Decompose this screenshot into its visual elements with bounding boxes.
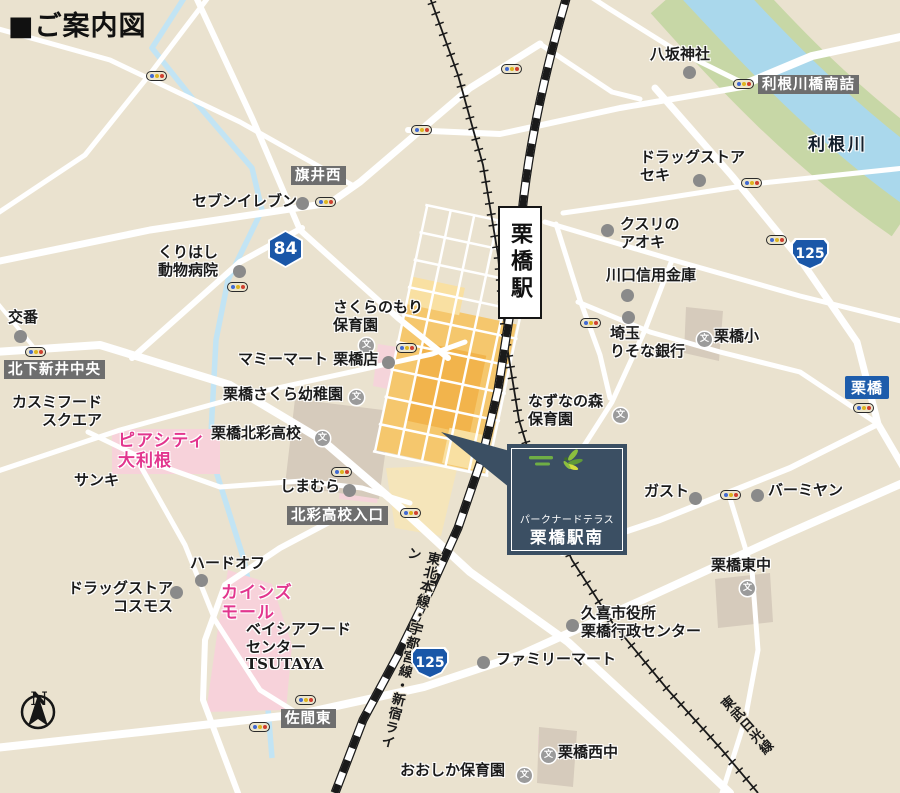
kurihashi-nishi-jhs-label: 栗橋西中	[558, 744, 618, 762]
koban-label: 交番	[8, 309, 38, 327]
drugstore-cosmos-label: ドラッグストア コスモス	[68, 580, 173, 615]
kuki-city-office-label: 久喜市役所 栗橋行政センター	[581, 605, 701, 640]
kurihashi-station-label: 栗橋駅	[504, 222, 536, 303]
traffic-signal-icon	[733, 79, 754, 89]
traffic-signal-icon	[411, 125, 432, 135]
bamiyan-label: バーミヤン	[768, 482, 843, 500]
nazuna-no-mori-nursery-school-icon: 文	[613, 408, 628, 423]
traffic-signal-icon	[331, 467, 352, 477]
map-canvas	[0, 0, 900, 793]
sama-higashi-intersection-sign: 佐間東	[281, 709, 336, 728]
property-name-line1: パークナードテラス	[520, 516, 614, 526]
traffic-signal-icon	[315, 197, 336, 207]
shimamura-marker-dot	[343, 484, 356, 497]
traffic-signal-icon	[396, 343, 417, 353]
kawaguchi-shinkin-bank-label: 川口信用金庫	[606, 267, 696, 285]
gusto-marker-dot	[689, 492, 702, 505]
nazuna-no-mori-nursery-label: なずなの森 保育園	[528, 393, 603, 428]
shimamura-label: しまむら	[280, 478, 340, 496]
kusuri-no-aoki-label: クスリの アオキ	[620, 216, 680, 251]
yasaka-shrine-marker-dot	[683, 66, 696, 79]
hard-off-label: ハードオフ	[190, 555, 265, 573]
ooshika-nursery-school-icon: 文	[517, 768, 532, 783]
guide-map: ■ご案内図 栗橋駅 東北本線・宇都宮線・新宿ライン 東武日光線 栗橋 パークナー…	[0, 0, 900, 793]
ooshika-nursery-label: おおしか保育園	[400, 762, 505, 780]
kasumi-food-square-label: カスミフード スクエア	[12, 394, 102, 429]
traffic-signal-icon	[400, 508, 421, 518]
route-125-badge: 125	[791, 238, 829, 270]
koban-marker-dot	[14, 330, 27, 343]
kurihashi-elementary-school-icon: 文	[697, 332, 712, 347]
hatai-nishi-intersection-sign: 旗井西	[291, 166, 346, 185]
seven-eleven-label: セブンイレブン	[192, 193, 297, 211]
traffic-signal-icon	[580, 318, 601, 328]
sakuranomori-nursery-label: さくらのもり 保育園	[333, 299, 423, 334]
kuki-city-office-marker-dot	[566, 619, 579, 632]
family-mart-marker-dot	[477, 656, 490, 669]
kurihashi-hokusai-high-school-label: 栗橋北彩高校	[211, 425, 301, 443]
kurihashi-hokusai-high-school-school-icon: 文	[315, 431, 330, 446]
mami-mart-kurihashi-label: マミーマート 栗橋店	[238, 351, 378, 369]
property-name-line2: 栗橋駅南	[530, 530, 604, 547]
sanki-label: サンキ	[74, 472, 119, 490]
parknard-terrace-logo	[507, 444, 607, 478]
traffic-signal-icon	[25, 347, 46, 357]
piacity-otone-label: ピアシティ 大利根	[118, 431, 206, 471]
tone-river-label: 利根川	[808, 135, 868, 155]
saitama-resona-bank-marker-dot	[622, 311, 635, 324]
map-title: ■ご案内図	[8, 4, 147, 43]
kurihashi-higashi-jhs-label: 栗橋東中	[711, 557, 771, 575]
bamiyan-marker-dot	[751, 489, 764, 502]
kurihashi-station-box: 栗橋駅	[498, 206, 542, 319]
kurihashi-animal-hospital-marker-dot	[233, 265, 246, 278]
beisia-food-center-tsutaya-label: ベイシアフード センター TSUTAYA	[246, 621, 351, 674]
seven-eleven-marker-dot	[296, 197, 309, 210]
kurihashi-nishi-jhs-school-icon: 文	[541, 748, 556, 763]
gusto-label: ガスト	[644, 483, 689, 501]
property-callout: パークナードテラス 栗橋駅南	[507, 444, 627, 555]
tonegawabashi-minamizume-intersection-sign: 利根川橋南詰	[758, 75, 859, 94]
traffic-signal-icon	[853, 403, 874, 413]
traffic-signal-icon	[295, 695, 316, 705]
compass-icon	[16, 690, 60, 734]
kusuri-no-aoki-marker-dot	[601, 224, 614, 237]
traffic-signal-icon	[720, 490, 741, 500]
traffic-signal-icon	[227, 282, 248, 292]
kurihashi-sakura-kindergarten-school-icon: 文	[349, 390, 364, 405]
kitashimoarai-chuo-intersection-sign: 北下新井中央	[4, 360, 105, 379]
hard-off-marker-dot	[195, 574, 208, 587]
traffic-signal-icon	[146, 71, 167, 81]
traffic-signal-icon	[249, 722, 270, 732]
traffic-signal-icon	[501, 64, 522, 74]
kurihashi-animal-hospital-label: くりはし 動物病院	[158, 244, 218, 279]
kawaguchi-shinkin-bank-marker-dot	[621, 289, 634, 302]
north-compass: N	[16, 690, 62, 710]
cainz-mall-label: カインズ モール	[221, 583, 293, 623]
hokusai-koko-iriguchi-intersection-sign: 北彩高校入口	[287, 506, 388, 525]
drugstore-seki-label: ドラッグストア セキ	[640, 149, 745, 184]
traffic-signal-icon	[741, 178, 762, 188]
route-84-badge: 84	[268, 230, 303, 268]
family-mart-label: ファミリーマート	[496, 651, 616, 669]
kurihashi-higashi-jhs-school-icon: 文	[740, 581, 755, 596]
kurihashi-elementary-label: 栗橋小	[714, 328, 759, 346]
traffic-signal-icon	[766, 235, 787, 245]
route-125-badge: 125	[411, 647, 449, 679]
kurihashi-road-sign: 栗橋	[845, 376, 889, 399]
mami-mart-kurihashi-marker-dot	[382, 356, 395, 369]
kurihashi-sakura-kindergarten-label: 栗橋さくら幼稚園	[223, 386, 343, 404]
yasaka-shrine-label: 八坂神社	[650, 46, 710, 64]
saitama-resona-bank-label: 埼玉 りそな銀行	[610, 325, 685, 360]
